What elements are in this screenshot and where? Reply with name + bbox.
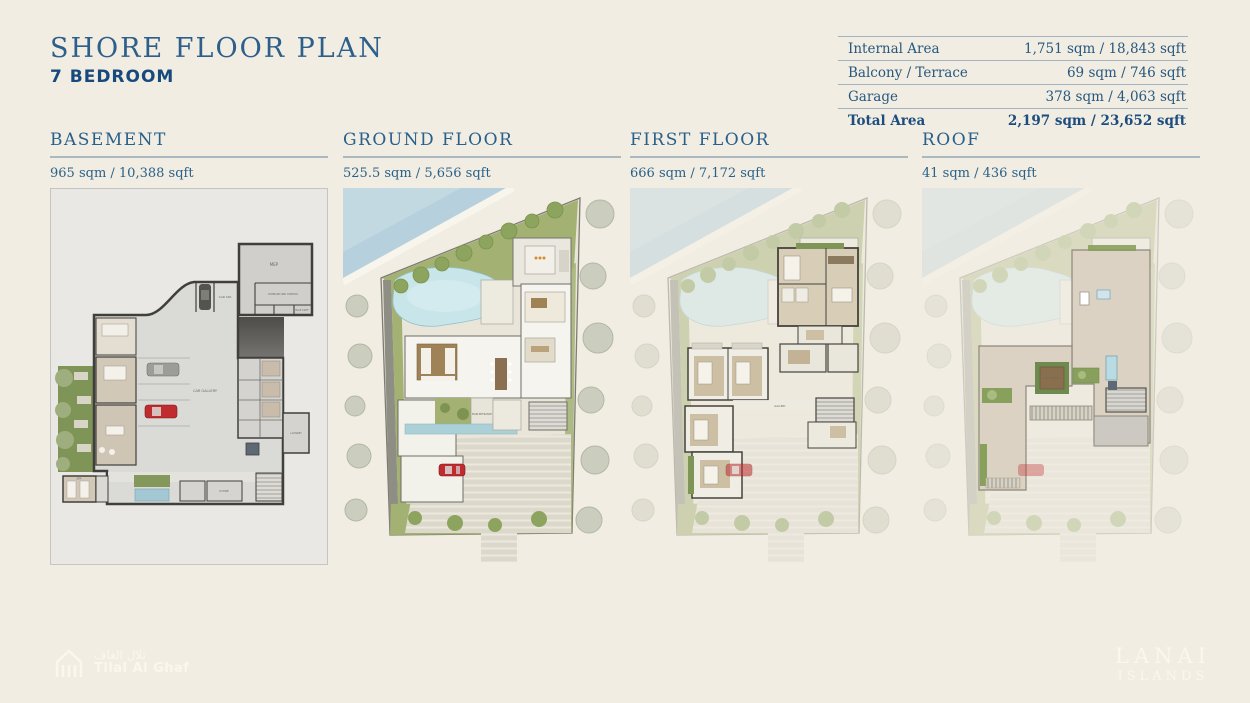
row-label: Balcony / Terrace: [838, 65, 1067, 81]
row-value: 1,751 sqm / 18,843 sqft: [1024, 41, 1188, 57]
floor-area: 41 sqm / 436 sqft: [922, 166, 1200, 183]
first-floor-plan-image: GALLERY: [630, 188, 908, 565]
lift: [1108, 381, 1117, 390]
stairs: [816, 398, 854, 422]
floor-column-first: FIRST FLOOR 666 sqm / 7,172 sqft: [630, 130, 908, 183]
decking: [986, 478, 1020, 488]
area-summary-table: Internal Area 1,751 sqm / 18,843 sqft Ba…: [838, 36, 1188, 132]
row-label: Total Area: [838, 113, 1008, 129]
row-value: 378 sqm / 4,063 sqft: [1046, 89, 1189, 105]
pool-skylight: [1106, 356, 1117, 380]
room-label-laundry: LAUNDRY: [290, 432, 302, 435]
skylight: [1080, 292, 1089, 305]
roof-plan-image: ROOF TERRACE: [922, 188, 1200, 565]
floor-column-basement: BASEMENT 965 sqm / 10,388 sqft: [50, 130, 328, 183]
tilal-al-ghaf-icon: [52, 646, 86, 680]
developer-logo: تلال الغاف Tilal Al Ghaf: [52, 646, 189, 680]
row-label: Garage: [838, 89, 1046, 105]
room-label-main-entrance: MAIN ENTRANCE: [472, 413, 492, 416]
sunken-lounge: [513, 238, 571, 286]
room-label-car-spa: CAR SPA: [219, 295, 233, 299]
developer-logo-arabic: تلال الغاف: [94, 649, 189, 663]
project-logo-line1: LANAI: [1108, 644, 1218, 668]
roof-terrace: ROOF TERRACE: [1035, 362, 1069, 394]
basement-floor-plan-image: MEP COMMAND AND CONTROL MALE STAFF: [50, 188, 328, 565]
first-plan: GALLERY: [630, 188, 908, 565]
basement-mep-wing: MEP COMMAND AND CONTROL MALE STAFF: [239, 244, 312, 315]
row-value: 69 sqm / 746 sqft: [1067, 65, 1188, 81]
floor-column-roof: ROOF 41 sqm / 436 sqft: [922, 130, 1200, 183]
room-label-lift: LIFT: [250, 448, 256, 452]
stairs: [256, 473, 282, 501]
page-subtitle: 7 BEDROOM: [50, 67, 384, 87]
stairs: [1106, 388, 1146, 412]
pergola: [1030, 406, 1092, 420]
room-label-roof-terrace: ROOF TERRACE: [1044, 377, 1062, 380]
table-row: Internal Area 1,751 sqm / 18,843 sqft: [838, 36, 1188, 60]
basement-plan: MEP COMMAND AND CONTROL MALE STAFF: [50, 188, 328, 565]
basement-spa: SPA: [63, 476, 108, 502]
floor-name: FIRST FLOOR: [630, 130, 908, 152]
row-value: 2,197 sqm / 23,652 sqft: [1008, 113, 1188, 129]
driveway-entry: [481, 532, 517, 562]
basement-garden: [55, 366, 94, 472]
divider: [50, 156, 328, 158]
floor-area: 965 sqm / 10,388 sqft: [50, 166, 328, 183]
floor-column-ground: GROUND FLOOR 525.5 sqm / 5,656 sqft: [343, 130, 621, 183]
floor-area: 666 sqm / 7,172 sqft: [630, 166, 908, 183]
room-label-command-control: COMMAND AND CONTROL: [268, 293, 299, 296]
divider: [343, 156, 621, 158]
page-title: SHORE FLOOR PLAN: [50, 34, 384, 64]
room-label-car-gallery: CAR GALLERY: [193, 389, 218, 393]
floor-name: BASEMENT: [50, 130, 328, 152]
row-label: Internal Area: [838, 41, 1024, 57]
project-logo-line2: ISLANDS: [1108, 669, 1218, 684]
floor-area: 525.5 sqm / 5,656 sqft: [343, 166, 621, 183]
title-block: SHORE FLOOR PLAN 7 BEDROOM: [50, 34, 384, 87]
floor-name: GROUND FLOOR: [343, 130, 621, 152]
stairs: [529, 402, 567, 430]
courtyard: [435, 398, 475, 424]
red-car: [439, 464, 465, 476]
project-logo: LANAI ISLANDS: [1108, 644, 1218, 684]
table-row-total: Total Area 2,197 sqm / 23,652 sqft: [838, 108, 1188, 132]
floor-name: ROOF: [922, 130, 1200, 152]
red-car-faded: [1018, 464, 1044, 476]
ground-floor-plan-image: MAIN ENTRANCE: [343, 188, 621, 565]
room-label-spa: SPA: [76, 477, 81, 481]
roof-plan: ROOF TERRACE: [922, 188, 1200, 565]
divider: [922, 156, 1200, 158]
developer-logo-text: Tilal Al Ghaf: [94, 662, 189, 677]
table-row: Garage 378 sqm / 4,063 sqft: [838, 84, 1188, 108]
divider: [630, 156, 908, 158]
roof-terrace-gray: [1094, 416, 1148, 446]
ground-plan: MAIN ENTRANCE: [343, 188, 621, 565]
room-label-gallery: GALLERY: [774, 404, 786, 408]
room-label-male-staff: MALE STAFF: [295, 309, 309, 312]
basement-pool: [135, 489, 169, 501]
brochure-page: SHORE FLOOR PLAN 7 BEDROOM Internal Area…: [0, 0, 1250, 703]
red-car-faded: [726, 464, 752, 476]
room-label-mep: MEP: [270, 262, 279, 267]
skylight: [1097, 290, 1110, 299]
room-label-store: STORE: [219, 489, 229, 493]
table-row: Balcony / Terrace 69 sqm / 746 sqft: [838, 60, 1188, 84]
